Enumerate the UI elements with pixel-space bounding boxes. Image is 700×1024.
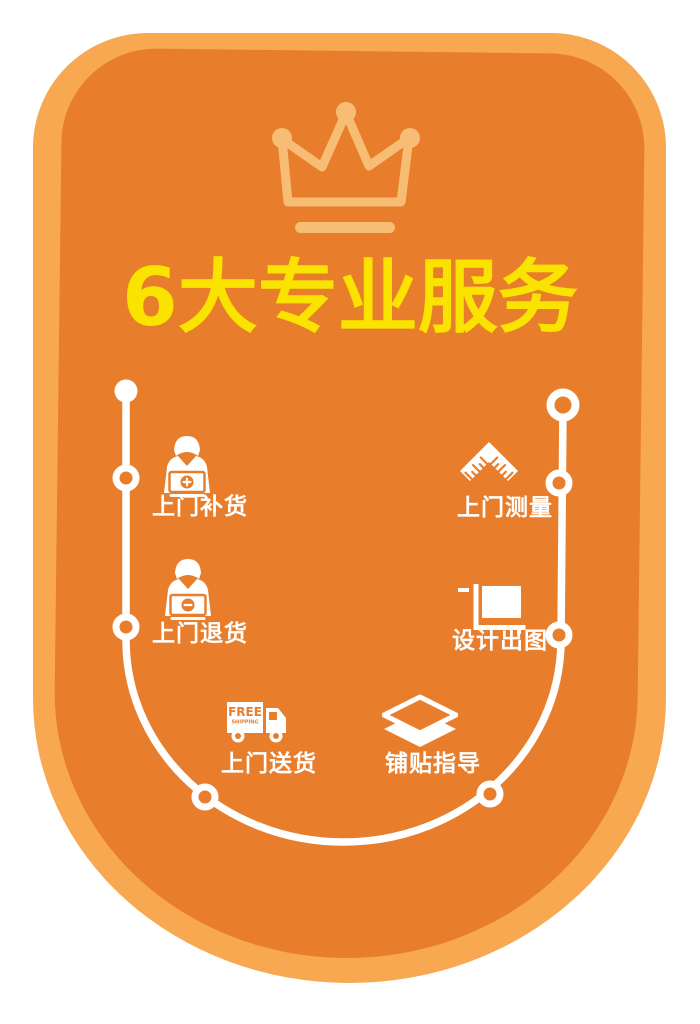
path-node-returns (116, 617, 136, 637)
path-end-ring (551, 393, 576, 418)
path-node-delivery (195, 787, 215, 807)
person-restock-icon (162, 433, 212, 497)
path-start-dot (115, 380, 138, 403)
tile-layers-icon (382, 694, 458, 750)
path-node-measure (549, 473, 569, 493)
service-label-design: 设计出图 (452, 630, 548, 653)
service-label-delivery: 上门送货 (221, 753, 317, 776)
angle-ruler-icon (456, 438, 522, 492)
service-label-measure: 上门测量 (457, 497, 553, 520)
person-returns-icon (163, 556, 213, 620)
service-label-restock: 上门补货 (152, 496, 248, 519)
service-path (0, 0, 700, 1024)
poster: 6大专业服务 上门补货 上门退货 (0, 0, 700, 1024)
truck-badge-line1: FREE (228, 705, 262, 719)
free-shipping-truck-icon: FREE SHIPPING (225, 699, 289, 743)
path-node-tiling (480, 784, 500, 804)
service-label-tiling: 铺贴指导 (385, 753, 481, 776)
path-node-restock (116, 468, 136, 488)
blueprint-icon (458, 584, 528, 634)
path-node-design (549, 625, 569, 645)
truck-badge-line2: SHIPPING (231, 720, 258, 726)
service-label-returns: 上门退货 (152, 623, 248, 646)
